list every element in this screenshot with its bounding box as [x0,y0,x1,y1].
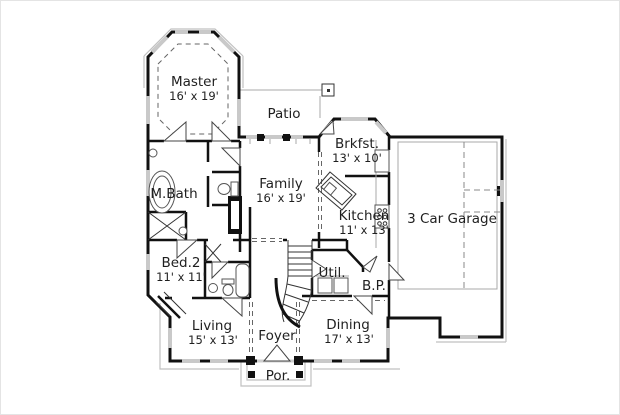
sink-icon [209,284,218,293]
room-dims-dining: 17' x 13' [324,332,374,346]
toilet-icon [222,279,234,296]
room-label-bed2: Bed.2 [161,255,200,271]
room-dims-bed2: 11' x 11' [156,270,206,284]
room-label-kitchen: Kitchen [339,208,390,224]
room-label-garage: 3 Car Garage [407,211,497,227]
toilet-icon [218,182,238,196]
room-label-mbath: M.Bath [150,186,197,202]
room-dims-kitchen: 11' x 13' [339,223,389,237]
bath2-door [212,262,228,278]
family-door [222,148,240,166]
front-door [264,345,290,361]
room-dims-living: 15' x 13' [188,333,238,347]
room-label-bp: B.P. [362,278,386,294]
master-hall-door [212,122,231,141]
room-dims-master: 16' x 19' [169,89,219,103]
bp-door [363,256,377,272]
family-fireplace-icon [228,196,242,234]
dining-door [354,296,372,314]
room-label-porch: Por. [266,368,291,384]
room-label-util: Util. [319,265,346,281]
room-label-master: Master [171,74,218,90]
room-label-foyer: Foyer [258,328,296,344]
room-dims-brkfst: 13' x 10' [332,151,382,165]
tub-icon [236,264,249,297]
closet-x-icon [205,244,221,262]
room-label-brkfst: Brkfst. [335,136,379,152]
room-label-patio: Patio [267,106,300,122]
closet-x-icon [148,212,186,240]
garage-entry-door [389,264,404,280]
master-door [164,122,186,141]
room-label-living: Living [192,318,232,334]
living-door [222,298,242,316]
room-dims-family: 16' x 19' [256,191,306,205]
floor-plan-svg: Master 16' x 19' Patio Brkfst. 13' x 10'… [0,0,620,415]
room-label-family: Family [259,176,302,192]
patio-wall-post [257,134,264,141]
sink-icon [149,149,157,157]
island-sink-icon [324,182,337,195]
sink-icon [179,227,187,235]
curved-staircase [276,240,312,327]
patio-wall-post [283,134,290,141]
room-label-dining: Dining [326,317,370,333]
floor-plan-image: Master 16' x 19' Patio Brkfst. 13' x 10'… [0,0,620,415]
patio-post-dot [327,89,330,92]
breakfast-patio-door [320,121,334,134]
